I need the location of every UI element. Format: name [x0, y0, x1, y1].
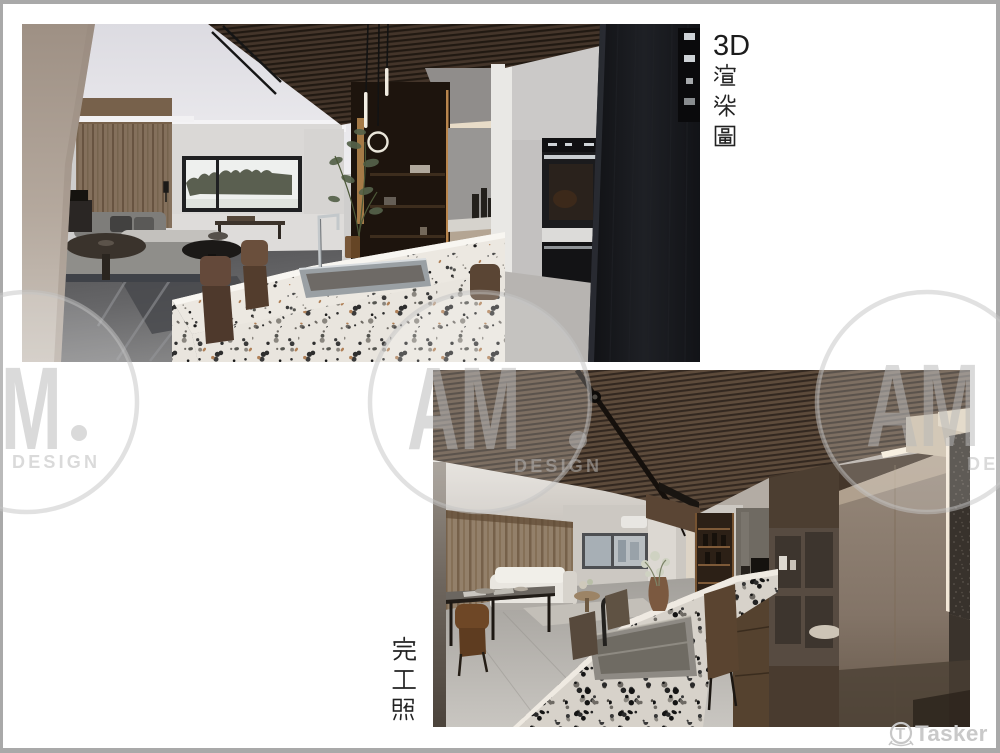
svg-text:Tasker: Tasker [915, 721, 988, 746]
svg-text:3D: 3D [713, 30, 750, 62]
svg-text:T: T [896, 726, 906, 743]
svg-text:DESIGN: DESIGN [12, 452, 100, 472]
